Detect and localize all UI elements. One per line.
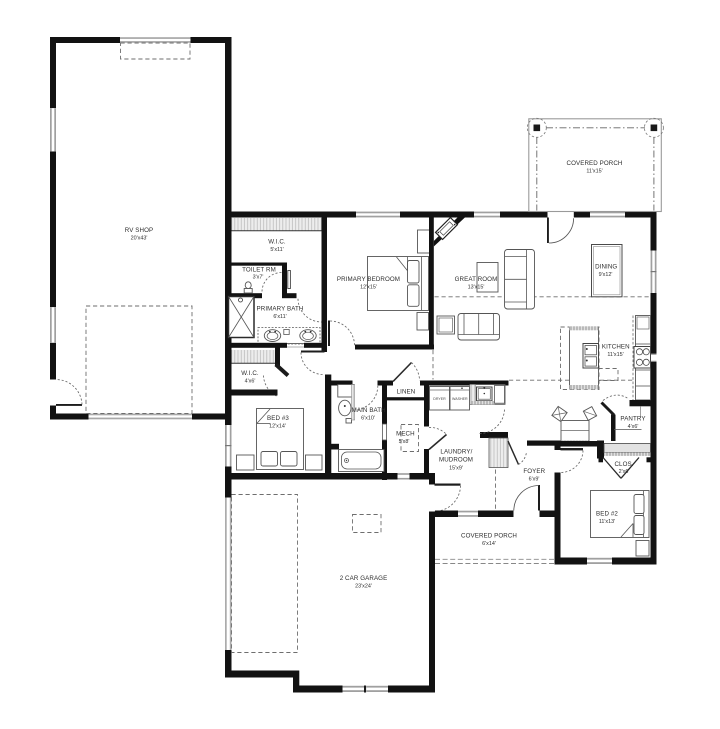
svg-text:6'x14': 6'x14' — [482, 541, 496, 547]
svg-text:12'x15': 12'x15' — [360, 285, 377, 291]
svg-text:11'x15': 11'x15' — [607, 352, 623, 358]
svg-text:COVERED PORCH: COVERED PORCH — [567, 160, 623, 167]
svg-text:WASHER: WASHER — [452, 397, 468, 401]
svg-text:2'x6': 2'x6' — [619, 469, 630, 475]
svg-text:11'x13': 11'x13' — [599, 519, 615, 525]
svg-text:MUDROOM: MUDROOM — [439, 457, 473, 464]
svg-text:5'x8': 5'x8' — [399, 439, 410, 445]
svg-text:PRIMARY BATH: PRIMARY BATH — [257, 306, 304, 313]
svg-text:CLOS.: CLOS. — [614, 461, 633, 468]
svg-text:15'x9': 15'x9' — [449, 466, 463, 472]
svg-text:RV SHOP: RV SHOP — [125, 227, 153, 234]
svg-text:TOILET RM: TOILET RM — [242, 267, 276, 274]
svg-text:MECH: MECH — [396, 431, 415, 438]
svg-text:2 CAR GARAGE: 2 CAR GARAGE — [340, 575, 388, 582]
svg-text:13'x15': 13'x15' — [468, 285, 485, 291]
svg-text:4'x6': 4'x6' — [628, 424, 639, 430]
svg-text:LAUNDRY/: LAUNDRY/ — [440, 449, 472, 456]
svg-text:KITCHEN: KITCHEN — [602, 344, 630, 351]
svg-text:6'x10': 6'x10' — [361, 416, 375, 422]
svg-text:20'x43': 20'x43' — [131, 236, 148, 242]
svg-text:LINEN: LINEN — [397, 389, 416, 396]
svg-text:6'x9': 6'x9' — [529, 477, 540, 483]
svg-text:MAIN BATH: MAIN BATH — [352, 407, 386, 414]
svg-text:PANTRY: PANTRY — [620, 416, 645, 423]
svg-text:FOYER: FOYER — [523, 468, 545, 475]
svg-text:6'x11': 6'x11' — [273, 314, 286, 320]
svg-text:GREAT ROOM: GREAT ROOM — [455, 276, 498, 283]
svg-text:COVERED PORCH: COVERED PORCH — [461, 533, 517, 540]
svg-text:23'x24': 23'x24' — [355, 584, 372, 590]
svg-text:PRIMARY BEDROOM: PRIMARY BEDROOM — [337, 276, 400, 283]
svg-text:DINING: DINING — [595, 264, 617, 271]
svg-text:4'x6': 4'x6' — [245, 379, 256, 385]
svg-text:3'x7': 3'x7' — [253, 275, 264, 281]
svg-text:W.I.C.: W.I.C. — [241, 370, 259, 377]
svg-text:5'x11': 5'x11' — [270, 247, 283, 253]
svg-text:9'x12': 9'x12' — [599, 272, 613, 278]
svg-text:BED #3: BED #3 — [267, 415, 289, 422]
svg-text:W.I.C.: W.I.C. — [268, 239, 286, 246]
svg-text:BED #2: BED #2 — [596, 511, 618, 518]
svg-text:DRYER: DRYER — [433, 397, 446, 401]
svg-text:11'x15': 11'x15' — [586, 169, 602, 175]
svg-text:12'x14': 12'x14' — [269, 424, 286, 430]
